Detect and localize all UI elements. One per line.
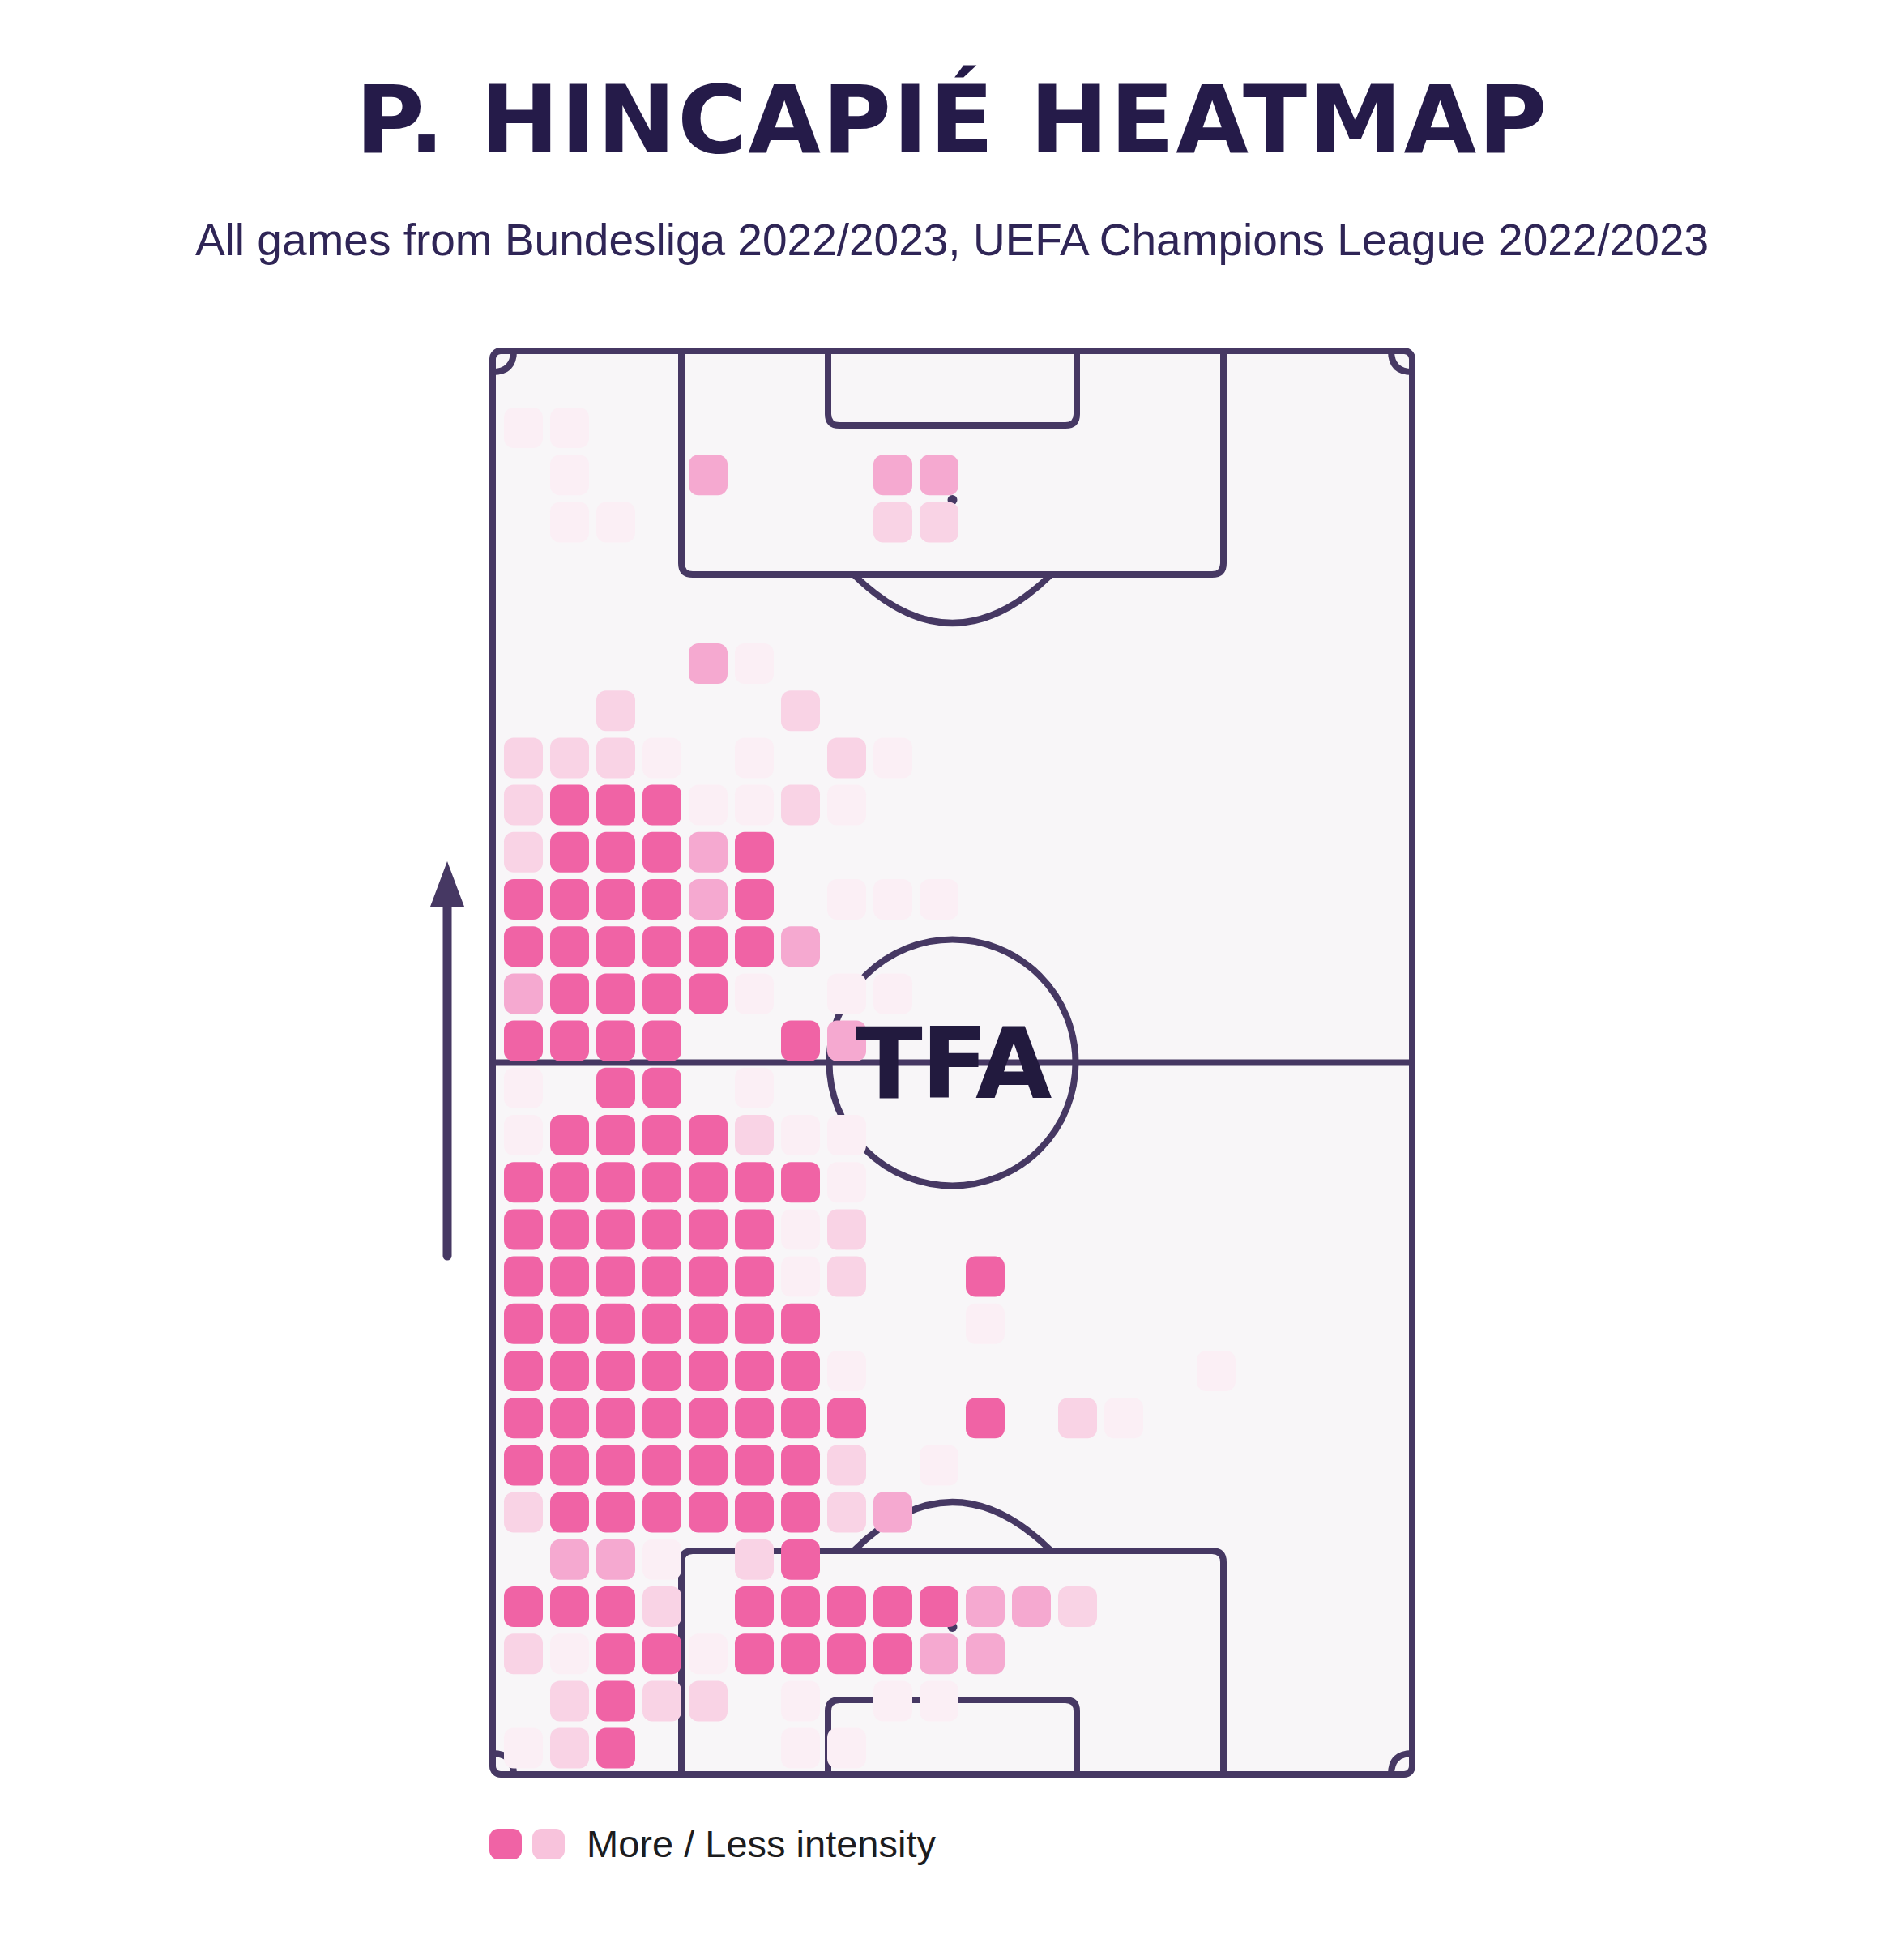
heat-cell [689,1680,728,1721]
heat-cell [642,785,681,826]
heat-cell [550,879,589,920]
heat-cell [735,1304,774,1344]
heat-cell [827,1398,866,1438]
heat-cell [827,785,866,826]
heat-cell [550,1633,589,1674]
heat-cell [596,690,635,731]
heat-cell [873,455,912,495]
heat-cell [781,785,820,826]
heat-cell [596,1586,635,1627]
heat-cell [550,926,589,967]
heat-cell [781,1728,820,1769]
heat-cell [504,1304,543,1344]
heat-cell [596,502,635,542]
heat-cell [596,785,635,826]
heat-cell [550,1257,589,1297]
heat-cell [550,1492,589,1533]
heat-cell [504,1586,543,1627]
heat-cell [504,737,543,778]
heat-cell [642,1304,681,1344]
heat-cell [596,1257,635,1297]
heat-cell [1104,1398,1143,1438]
heat-cell [642,1586,681,1627]
heat-cell [689,926,728,967]
heat-cell [735,1209,774,1249]
heat-cell [920,1445,958,1485]
heat-cell [504,926,543,967]
tfa-logo: TFA [856,1006,1052,1121]
heat-cell [504,1445,543,1485]
heat-cell [642,926,681,967]
heat-cell [642,973,681,1014]
more-intensity-swatch [489,1829,522,1859]
heat-cell [550,832,589,873]
heat-cell [781,1115,820,1155]
heat-cell [781,1492,820,1533]
heat-cell [689,1162,728,1202]
heat-cell [504,1115,543,1155]
heat-cell [781,1162,820,1202]
legend-label: More / Less intensity [587,1825,936,1863]
attack-direction-arrow [430,861,464,1256]
heat-cell [642,1680,681,1721]
heat-cell [596,1680,635,1721]
heat-cell [596,1445,635,1485]
heat-cell [689,832,728,873]
heat-cell [596,1021,635,1061]
heat-cell [596,1398,635,1438]
heat-cell [504,408,543,448]
heat-cell [642,1257,681,1297]
heat-cell [550,1680,589,1721]
heat-cell [504,832,543,873]
heat-cell [735,1586,774,1627]
heat-cell [504,1728,543,1769]
heat-cell [504,973,543,1014]
heat-cell [550,1115,589,1155]
heat-cell [873,1680,912,1721]
heat-cell [689,879,728,920]
heat-cell [550,785,589,826]
heat-cell [689,1257,728,1297]
heat-cell [596,926,635,967]
heat-cell [735,1162,774,1202]
heat-cell [689,1351,728,1391]
heat-cell [735,879,774,920]
heat-cell [827,1586,866,1627]
heat-cell [827,1633,866,1674]
football-pitch: TFA [0,0,1904,1947]
heat-cell [827,1351,866,1391]
heat-cell [504,1351,543,1391]
heat-cell [966,1257,1005,1297]
heat-cell [781,1257,820,1297]
heat-cell [781,1539,820,1580]
heat-cell [596,1539,635,1580]
heat-cell [550,1162,589,1202]
heat-cell [504,1492,543,1533]
heat-cell [550,1021,589,1061]
heat-cell [735,1492,774,1533]
heat-cell [550,1445,589,1485]
heat-cell [596,1351,635,1391]
heat-cell [920,1633,958,1674]
heat-cell [504,879,543,920]
heat-cell [689,1304,728,1344]
heat-cell [550,502,589,542]
heat-cell [781,926,820,967]
heat-cell [596,1209,635,1249]
heat-cell [689,785,728,826]
heat-cell [920,502,958,542]
heat-cell [920,1586,958,1627]
heat-cell [642,1539,681,1580]
heat-cell [596,832,635,873]
heat-cell [689,1398,728,1438]
heat-cell [827,1445,866,1485]
heat-cell [596,1068,635,1108]
heat-cell [1058,1586,1097,1627]
heat-cell [735,1539,774,1580]
heat-cell [781,690,820,731]
heat-cell [550,1539,589,1580]
heat-cell [781,1398,820,1438]
heat-cell [689,1633,728,1674]
heat-cell [550,1304,589,1344]
heat-cell [689,455,728,495]
heat-cell [966,1633,1005,1674]
heat-cell [781,1586,820,1627]
heat-cell [689,1445,728,1485]
heat-cell [642,1492,681,1533]
heat-cell [735,973,774,1014]
heat-cell [504,1162,543,1202]
heat-cell [550,1728,589,1769]
heat-cell [550,1398,589,1438]
heat-cell [873,1586,912,1627]
intensity-legend: More / Less intensity [489,1825,936,1863]
heat-cell [781,1209,820,1249]
heat-cell [735,785,774,826]
heat-cell [596,1115,635,1155]
heat-cell [1197,1351,1236,1391]
heat-cell [550,973,589,1014]
heat-cell [504,1257,543,1297]
less-intensity-swatch [532,1829,565,1859]
heat-cell [550,1586,589,1627]
heat-cell [689,1115,728,1155]
heat-cell [642,1209,681,1249]
heat-cell [550,455,589,495]
heat-cell [873,502,912,542]
heat-cell [920,879,958,920]
heat-cell [642,1398,681,1438]
heat-cell [920,1680,958,1721]
heat-cell [550,1209,589,1249]
heat-cell [781,1304,820,1344]
heat-cell [735,1257,774,1297]
heat-cell [550,408,589,448]
heat-cell [966,1398,1005,1438]
heat-cell [827,1162,866,1202]
heat-cell [781,1445,820,1485]
heat-cell [642,1351,681,1391]
heat-cell [781,1021,820,1061]
heat-cell [504,1068,543,1108]
heat-cell [827,879,866,920]
heat-cell [735,1115,774,1155]
heat-cell [642,832,681,873]
heat-cell [504,1398,543,1438]
heat-cell [596,973,635,1014]
heat-cell [642,1633,681,1674]
heat-cell [689,1492,728,1533]
heat-cell [550,737,589,778]
heat-cell [735,737,774,778]
heat-cell [596,1162,635,1202]
heat-cell [504,785,543,826]
heat-cell [596,737,635,778]
heat-cell [504,1021,543,1061]
heat-cell [504,1209,543,1249]
heat-cell [1012,1586,1051,1627]
heat-cell [735,1398,774,1438]
heat-cell [781,1351,820,1391]
heat-cell [596,1492,635,1533]
heat-cell [827,1728,866,1769]
heat-cell [550,1351,589,1391]
heat-cell [873,879,912,920]
heat-cell [827,737,866,778]
heat-cell [596,1304,635,1344]
heat-cell [735,1445,774,1485]
heat-cell [827,1257,866,1297]
heat-cell [735,1351,774,1391]
heat-cell [642,879,681,920]
heat-cell [873,737,912,778]
heat-cell [735,926,774,967]
heat-cell [596,879,635,920]
heat-cell [735,1633,774,1674]
heat-cell [781,1680,820,1721]
heat-cell [642,737,681,778]
heat-cell [689,643,728,684]
heat-cell [1058,1398,1097,1438]
heat-cell [689,1209,728,1249]
heat-cell [642,1445,681,1485]
heat-cell [642,1021,681,1061]
heat-cell [966,1586,1005,1627]
heat-cell [642,1068,681,1108]
heat-cell [504,1633,543,1674]
heat-cell [827,1209,866,1249]
heat-cell [735,832,774,873]
heat-cell [873,1492,912,1533]
page: P. HINCAPIÉ HEATMAP All games from Bunde… [0,0,1904,1947]
heat-cell [966,1304,1005,1344]
heat-cell [596,1728,635,1769]
heat-cell [642,1115,681,1155]
heat-cell [920,455,958,495]
heat-cell [735,1068,774,1108]
heat-cell [596,1633,635,1674]
heat-cell [642,1162,681,1202]
heat-cell [827,1492,866,1533]
heat-cell [781,1633,820,1674]
heat-cell [689,973,728,1014]
heat-cell [873,1633,912,1674]
heat-cell [735,643,774,684]
